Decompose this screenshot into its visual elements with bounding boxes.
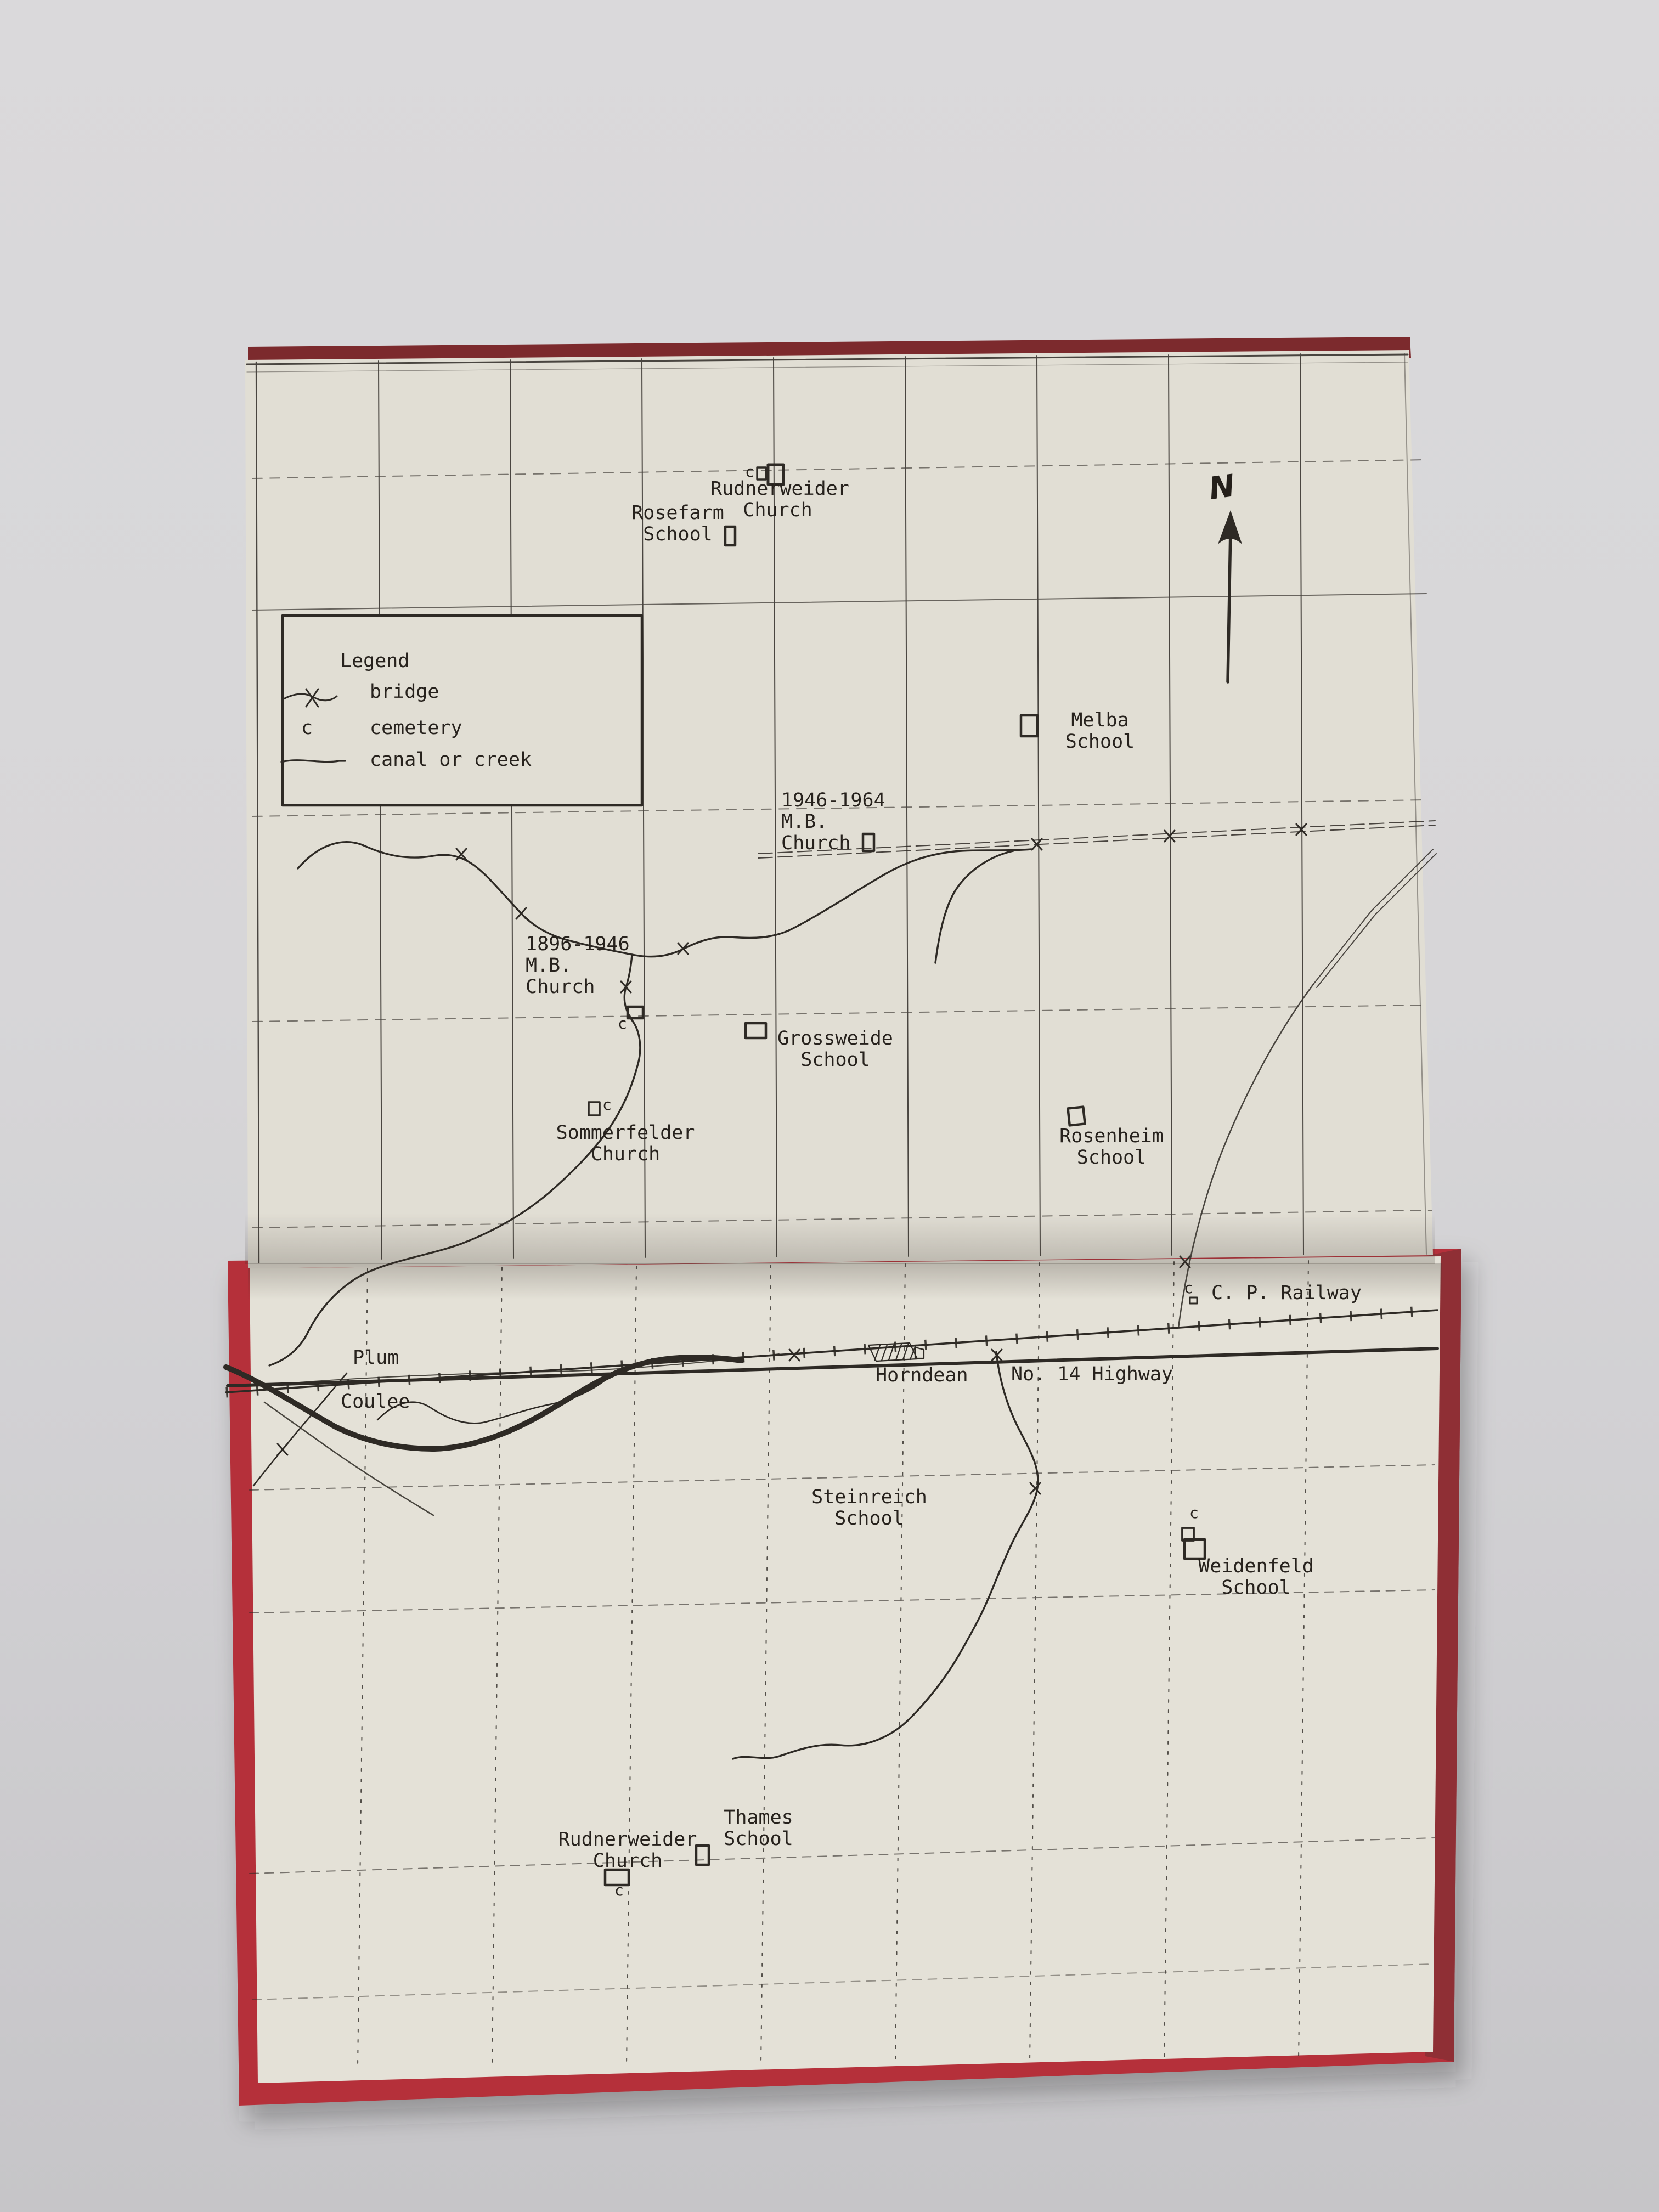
cemetery-marker: c (1184, 1280, 1193, 1296)
legend-title: Legend (340, 651, 409, 672)
north-label: N (1207, 468, 1237, 507)
cemetery-marker: c (1189, 1505, 1199, 1521)
label-grossweide-school: Grossweide School (768, 1028, 902, 1071)
legend-item-cemetery: cemetery (370, 718, 462, 739)
legend-item-canal-or-creek: canal or creek (370, 749, 532, 771)
cemetery-marker: c (602, 1097, 612, 1113)
cemetery-marker: c (618, 1016, 627, 1031)
label-cp-railway: C. P. Railway (1211, 1283, 1362, 1304)
map-artwork (0, 0, 1659, 2212)
label-coulee: Coulee (341, 1391, 410, 1413)
label-rudnerweider-church-top: Rudnerweider Church (710, 478, 845, 521)
label-steinreich-school: Steinreich School (802, 1487, 936, 1530)
legend-item-bridge: bridge (370, 681, 439, 703)
label-mb-church-1946: 1946-1964 M.B. Church (781, 790, 885, 854)
legend-cemetery-symbol: c (301, 718, 313, 739)
label-thames-school: Thames School (713, 1807, 804, 1850)
label-rudnerweider-church-bottom: Rudnerweider Church (548, 1829, 708, 1872)
legend-box (281, 616, 642, 805)
label-horndean: Horndean (876, 1365, 968, 1386)
label-melba-school: Melba School (1045, 710, 1155, 753)
cemetery-marker: c (745, 464, 754, 479)
label-mb-church-1896: 1896-1946 M.B. Church (526, 934, 630, 998)
label-weidenfeld-school: Weidenfeld School (1186, 1556, 1326, 1599)
label-plum: Plum (353, 1347, 399, 1369)
label-sommerfelder-church: Sommerfelder Church (546, 1122, 704, 1165)
label-rosenheim-school: Rosenheim School (1051, 1126, 1172, 1169)
label-no14-highway: No. 14 Highway (1011, 1364, 1173, 1385)
photo-open-book-map: Rosefarm School Rudnerweider Church c Me… (0, 0, 1659, 2212)
fold-shadow-top (245, 1214, 1435, 1264)
cemetery-marker: c (614, 1883, 624, 1898)
